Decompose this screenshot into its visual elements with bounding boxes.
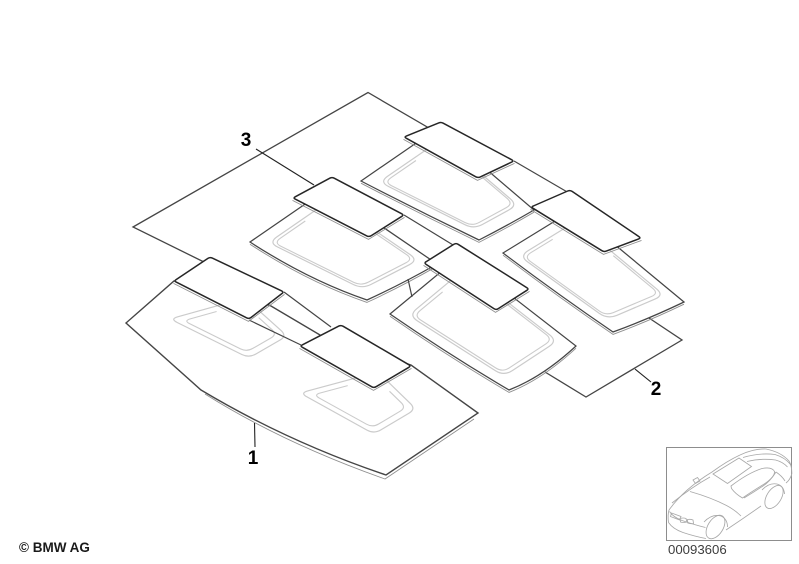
svg-text:1: 1 <box>248 448 259 469</box>
svg-text:2: 2 <box>651 379 662 400</box>
svg-text:3: 3 <box>241 130 252 151</box>
svg-text:© BMW AG: © BMW AG <box>19 540 90 555</box>
svg-text:00093606: 00093606 <box>668 542 727 557</box>
